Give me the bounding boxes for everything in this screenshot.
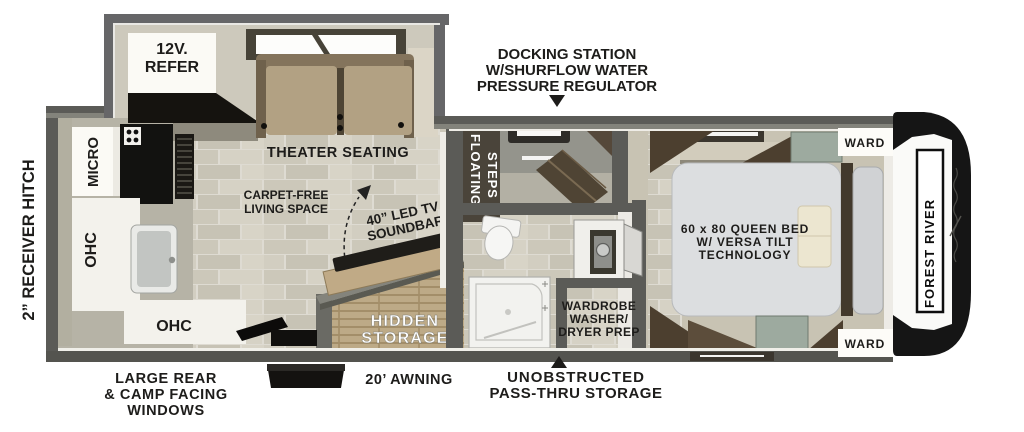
svg-text:UNOBSTRUCTED: UNOBSTRUCTED	[507, 369, 645, 386]
svg-text:LARGE REAR: LARGE REAR	[115, 371, 217, 387]
svg-text:FOREST RIVER: FOREST RIVER	[922, 199, 937, 308]
svg-text:THEATER SEATING: THEATER SEATING	[267, 145, 409, 161]
svg-text:CARPET-FREE: CARPET-FREE	[244, 188, 329, 202]
svg-text:OHC: OHC	[156, 318, 192, 335]
svg-text:PASS-THRU STORAGE: PASS-THRU STORAGE	[490, 385, 663, 402]
svg-text:WARD: WARD	[845, 136, 886, 150]
svg-text:PRESSURE REGULATOR: PRESSURE REGULATOR	[477, 78, 657, 95]
svg-text:2” RECEIVER HITCH: 2” RECEIVER HITCH	[20, 159, 38, 320]
svg-text:W/SHURFLOW WATER: W/SHURFLOW WATER	[486, 62, 648, 79]
svg-text:12V.: 12V.	[156, 41, 187, 58]
svg-text:WASHER/: WASHER/	[570, 312, 629, 326]
svg-text:STORAGE: STORAGE	[361, 330, 448, 347]
svg-text:20’ AWNING: 20’ AWNING	[365, 372, 452, 388]
svg-text:LIVING SPACE: LIVING SPACE	[244, 202, 328, 216]
svg-text:DRYER PREP: DRYER PREP	[558, 325, 640, 339]
svg-text:OHC: OHC	[83, 232, 100, 268]
svg-text:DOCKING STATION: DOCKING STATION	[498, 46, 637, 63]
svg-text:WINDOWS: WINDOWS	[127, 403, 205, 419]
svg-text:60 x 80 QUEEN BED: 60 x 80 QUEEN BED	[681, 222, 809, 236]
svg-text:WARDROBE: WARDROBE	[562, 299, 637, 313]
svg-text:STEPS: STEPS	[485, 152, 500, 199]
svg-text:MICRO: MICRO	[85, 137, 102, 187]
svg-text:TECHNOLOGY: TECHNOLOGY	[699, 248, 792, 262]
svg-text:FLOATING: FLOATING	[468, 134, 483, 206]
svg-text:HIDDEN: HIDDEN	[371, 313, 440, 330]
svg-text:& CAMP FACING: & CAMP FACING	[104, 387, 228, 403]
svg-text:WARD: WARD	[845, 337, 886, 351]
svg-text:W/ VERSA TILT: W/ VERSA TILT	[696, 235, 793, 249]
svg-text:REFER: REFER	[145, 59, 200, 76]
